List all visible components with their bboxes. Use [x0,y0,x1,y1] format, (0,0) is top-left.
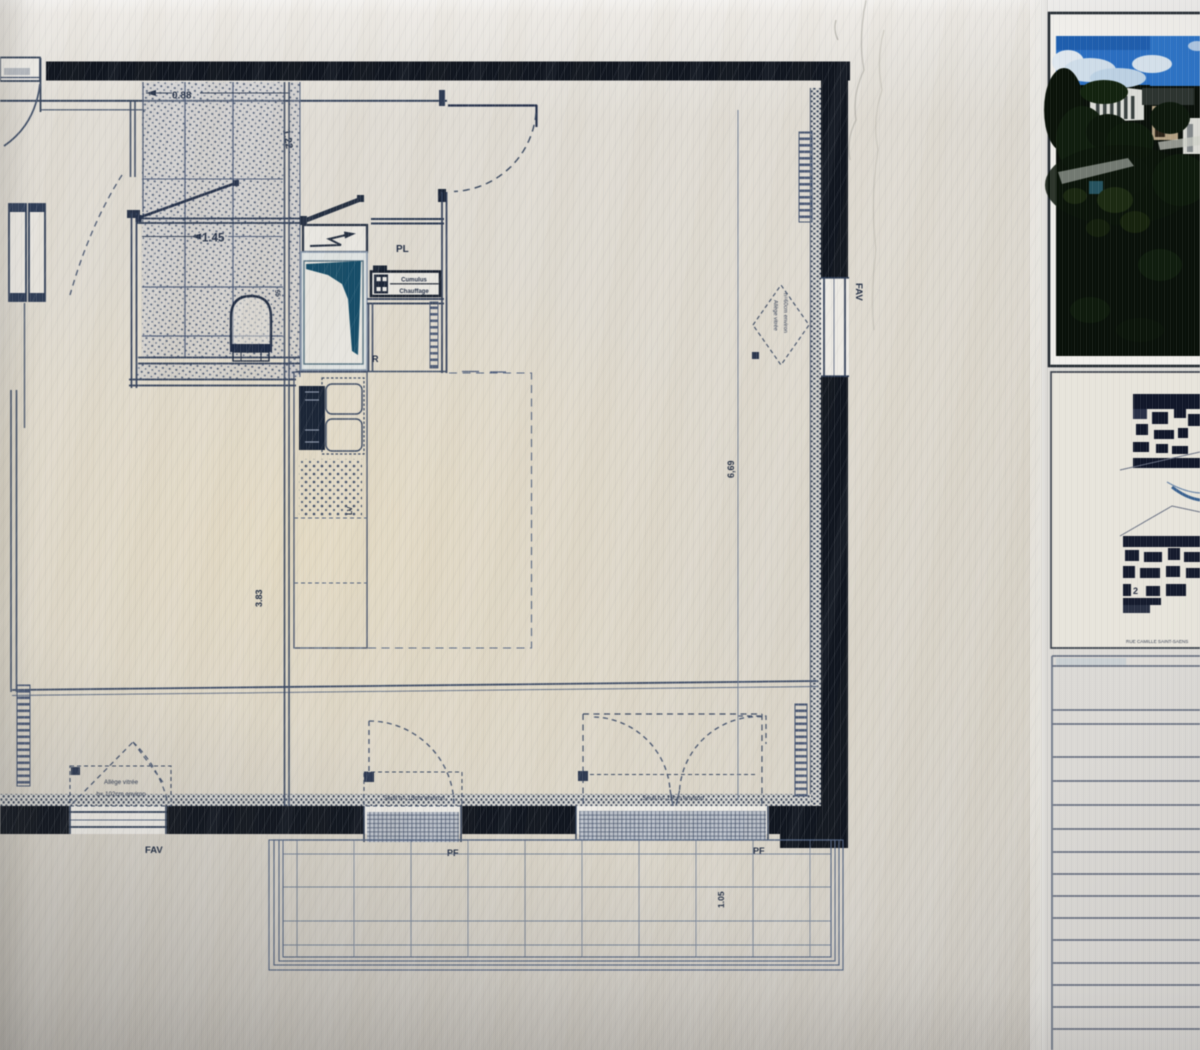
svg-text:Allège vitrée: Allège vitrée [772,300,778,331]
svg-text:h= 102cm environ: h= 102cm environ [96,791,146,798]
svg-text:R: R [372,354,379,364]
svg-text:Chauffage: Chauffage [399,289,429,295]
svg-text:Cumulus: Cumulus [401,278,427,284]
svg-text:PF: PF [753,846,765,856]
svg-text:PF: PF [447,848,459,858]
svg-text:Allège vitrée: Allège vitrée [104,779,139,786]
svg-text:FAV: FAV [145,845,163,856]
svg-text:Seuil h= 15cm environ: Seuil h= 15cm environ [383,795,445,802]
svg-text:Seuil h= 15cm environ: Seuil h= 15cm environ [642,795,704,802]
svg-text:6,69: 6,69 [726,460,736,478]
svg-text:PL: PL [396,244,409,255]
svg-text:h=60cm environ: h=60cm environ [782,293,788,333]
svg-text:3.83: 3.83 [254,589,264,607]
svg-text:LV: LV [347,506,354,515]
svg-text:2: 2 [1133,586,1138,596]
svg-text:FAV: FAV [853,283,864,301]
svg-text:1.05: 1.05 [716,891,726,908]
svg-text:0.88: 0.88 [172,91,192,102]
svg-text:RUE CAMILLE SAINT-SAENS: RUE CAMILLE SAINT-SAENS [1126,639,1188,644]
svg-text:1.45: 1.45 [202,233,225,245]
